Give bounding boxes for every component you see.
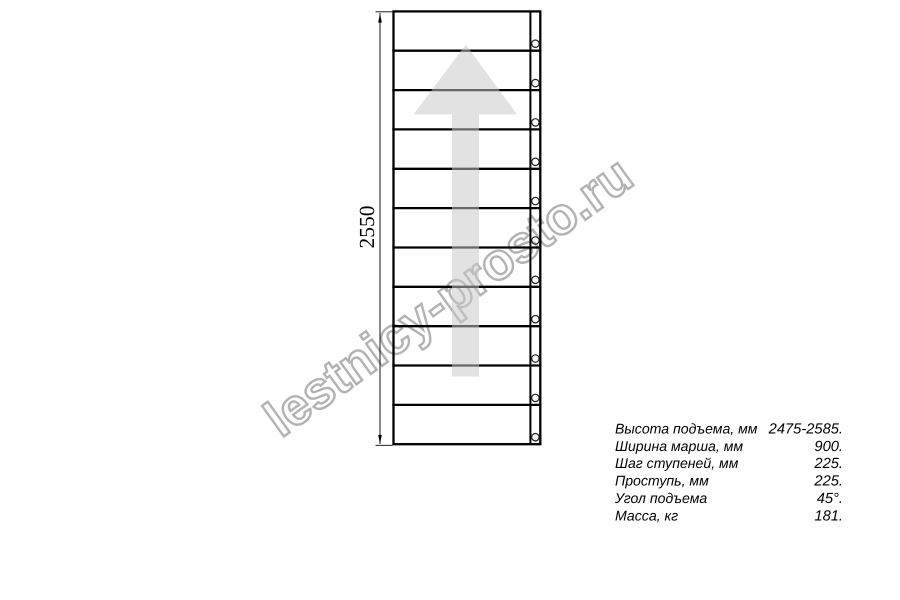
svg-text:Угол подъема: Угол подъема [614, 490, 707, 506]
svg-text:2475-2585.: 2475-2585. [768, 421, 843, 437]
svg-text:45°.: 45°. [817, 491, 843, 507]
svg-text:lestnicy-prosto.ru: lestnicy-prosto.ru [254, 145, 643, 447]
svg-text:Шаг ступеней, мм: Шаг ступеней, мм [615, 455, 739, 471]
svg-text:2550: 2550 [355, 206, 379, 249]
svg-text:225.: 225. [813, 456, 843, 472]
svg-text:900.: 900. [814, 439, 843, 455]
svg-text:Высота подъема, мм: Высота подъема, мм [615, 420, 758, 436]
svg-text:Ширина марша, мм: Ширина марша, мм [615, 438, 743, 454]
svg-text:181.: 181. [814, 509, 843, 525]
svg-text:Проступь, мм: Проступь, мм [615, 473, 709, 489]
svg-text:225.: 225. [813, 474, 843, 490]
svg-text:Масса, кг: Масса, кг [615, 508, 678, 524]
